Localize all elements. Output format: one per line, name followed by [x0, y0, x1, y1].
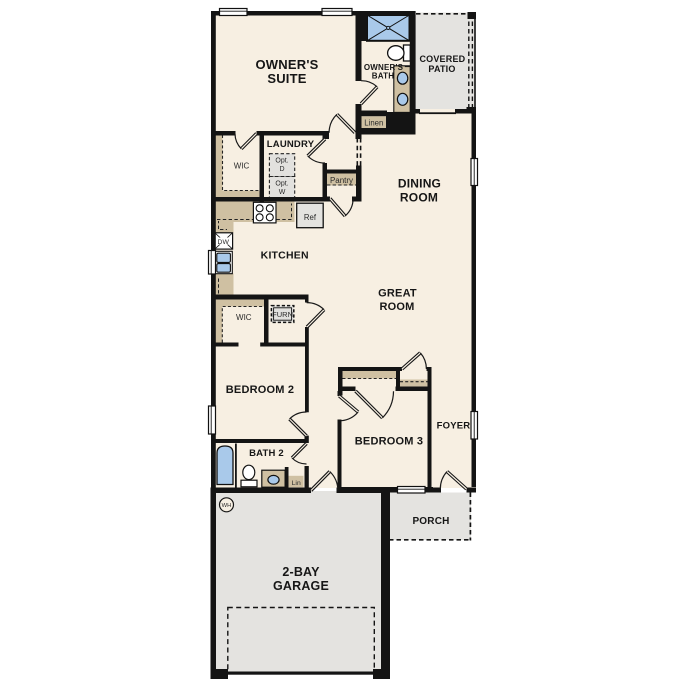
svg-text:BATH 2: BATH 2 — [249, 448, 284, 459]
svg-text:PATIO: PATIO — [428, 64, 455, 74]
svg-text:PORCH: PORCH — [412, 516, 449, 527]
svg-text:DINING: DINING — [398, 177, 441, 191]
svg-text:DW: DW — [218, 239, 230, 246]
svg-text:FOYER: FOYER — [437, 420, 471, 431]
svg-text:GREAT: GREAT — [378, 288, 417, 300]
svg-text:WH: WH — [222, 503, 232, 509]
svg-text:Lin: Lin — [292, 480, 301, 487]
svg-text:D: D — [279, 166, 284, 173]
svg-text:Opt.: Opt. — [275, 158, 288, 165]
svg-text:Linen: Linen — [364, 119, 383, 128]
svg-text:Opt.: Opt. — [275, 181, 288, 188]
svg-text:GARAGE: GARAGE — [273, 579, 329, 593]
svg-text:COVERED: COVERED — [419, 54, 465, 64]
svg-text:ROOM: ROOM — [379, 301, 414, 313]
svg-text:FURN: FURN — [272, 310, 293, 319]
svg-text:BATH: BATH — [372, 72, 394, 81]
svg-text:Pantry: Pantry — [330, 176, 353, 185]
svg-text:W: W — [279, 189, 286, 196]
svg-text:Ref: Ref — [304, 213, 317, 222]
svg-text:WIC: WIC — [236, 313, 252, 322]
svg-text:BEDROOM 3: BEDROOM 3 — [355, 436, 423, 448]
svg-text:WIC: WIC — [234, 162, 250, 171]
svg-text:SUITE: SUITE — [267, 71, 306, 86]
svg-text:BEDROOM 2: BEDROOM 2 — [226, 384, 294, 396]
svg-text:OWNER'S: OWNER'S — [256, 57, 319, 72]
svg-text:KITCHEN: KITCHEN — [261, 249, 309, 261]
svg-text:2-BAY: 2-BAY — [282, 565, 320, 579]
svg-text:ROOM: ROOM — [400, 191, 438, 205]
svg-text:LAUNDRY: LAUNDRY — [267, 139, 315, 150]
